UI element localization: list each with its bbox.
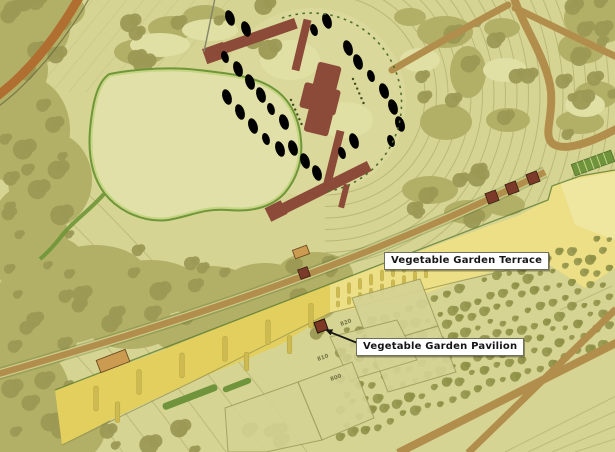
map-illustration: 820 810 800 bbox=[0, 0, 615, 452]
pavilion-label: Vegetable Garden Pavilion bbox=[356, 338, 524, 356]
garden-plan-map: 820 810 800 Vegetable Garden Terrace Veg… bbox=[0, 0, 615, 452]
terrace-label: Vegetable Garden Terrace bbox=[384, 252, 549, 270]
